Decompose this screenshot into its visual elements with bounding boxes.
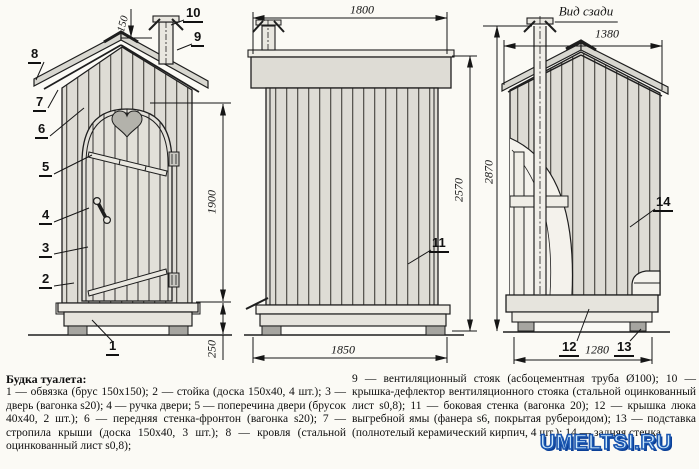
base-frame-back: [512, 312, 652, 322]
blueprint-canvas: Вид сзади 150 1900 250 1800 1850 2570 28…: [0, 0, 699, 469]
legend-left-column: Будка туалета: 1 — обвязка (брус 150х150…: [6, 373, 346, 453]
callout-10: 10: [183, 6, 203, 23]
roof-slab-side: [251, 57, 451, 88]
pit-hatch-cover: [506, 295, 658, 312]
callout-6: 6: [35, 122, 48, 139]
base-sill-front: [58, 303, 198, 312]
front-view: [28, 16, 232, 335]
umeltsi-watermark-logo: UMELTSI.RU: [540, 431, 672, 455]
legend-title: Будка туалета:: [6, 373, 346, 386]
dim-250-label: 250: [205, 340, 220, 358]
base-sill-side: [256, 305, 450, 314]
callout-1: 1: [106, 339, 119, 356]
legend-item-4: 4 — ручка двери;: [106, 400, 194, 412]
legend-item-9: 9 — вентиляционный стояк (асбоцементная …: [352, 373, 666, 385]
callout-4: 4: [39, 208, 52, 225]
callout-2: 2: [39, 272, 52, 289]
dim-1380-label: 1380: [595, 27, 619, 42]
base-frame-front: [64, 312, 192, 326]
technical-drawing: [0, 0, 699, 372]
brick-support: [68, 326, 87, 335]
callout-8: 8: [28, 47, 41, 64]
roof-sheet-side: [248, 50, 454, 57]
dim-2870-label: 2870: [482, 160, 497, 184]
back-view-title: Вид сзади: [555, 4, 618, 23]
legend-item-6: 6 — передняя стенка-фронтон (вагонка s20…: [84, 413, 323, 425]
side-wall: [266, 88, 438, 305]
brick-support: [262, 326, 281, 335]
dim-1280-label: 1280: [585, 343, 609, 358]
base-frame-side: [260, 314, 446, 326]
legend-item-2: 2 — стойка (доска 150х40, 4 шт.);: [152, 386, 325, 398]
dim-1850-label: 1850: [331, 343, 355, 358]
legend-item-1: 1 — обвязка (брус 150х150);: [6, 386, 152, 398]
callout-12: 12: [559, 340, 579, 357]
callout-5: 5: [39, 160, 52, 177]
brick-support: [518, 322, 534, 331]
vent-pipe-side: [262, 26, 275, 50]
dim-1900-label: 1900: [205, 190, 220, 214]
callout-9: 9: [191, 30, 204, 47]
back-view: [502, 16, 670, 332]
dim-1800-label: 1800: [350, 3, 374, 18]
brick-support: [630, 322, 646, 331]
corner-stud: [514, 152, 524, 295]
side-view: [244, 20, 464, 335]
callout-11: 11: [429, 236, 449, 253]
door-hinge-upper: [169, 152, 179, 166]
callout-7: 7: [33, 95, 46, 112]
callout-14: 14: [653, 195, 673, 212]
brick-support: [169, 326, 188, 335]
legend-right-column: 9 — вентиляционный стояк (асбоцементная …: [352, 373, 696, 440]
brick-support: [426, 326, 445, 335]
legend-item-11: 11 — боковая стенка (вагонка 20);: [410, 400, 594, 412]
door-hinge-lower: [169, 273, 179, 287]
callout-13: 13: [614, 340, 634, 357]
callout-3: 3: [39, 241, 52, 258]
dim-2570-label: 2570: [452, 178, 467, 202]
